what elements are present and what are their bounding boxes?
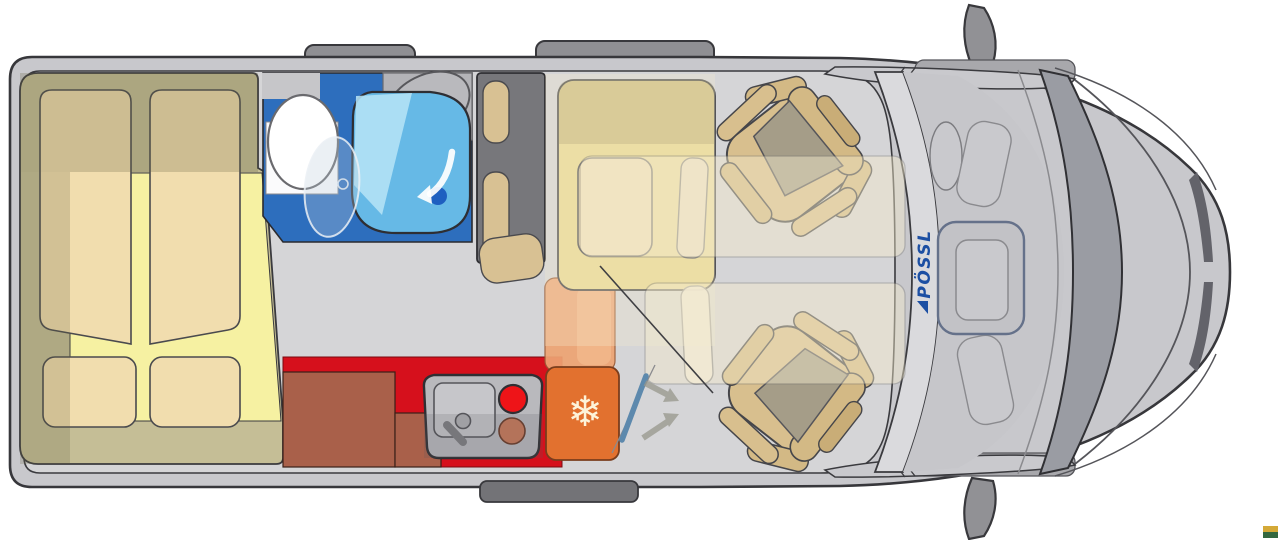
dash-speaker xyxy=(930,122,962,190)
floorplan-canvas: ❄ xyxy=(0,0,1280,540)
kitchen xyxy=(283,357,562,467)
instrument-cluster xyxy=(956,240,1008,320)
brand-logo-text: PÖSSL xyxy=(913,229,935,298)
bed-shade-overlay xyxy=(20,172,70,464)
wardrobe-end-cushion xyxy=(477,232,546,285)
sink-unit-shade xyxy=(424,414,543,458)
wardrobe-cushion xyxy=(483,81,509,143)
bed-overlay xyxy=(645,283,905,384)
bed-shade-overlay xyxy=(20,73,258,172)
burner-icon xyxy=(499,385,527,413)
bathroom xyxy=(262,58,481,242)
wardrobe xyxy=(477,73,546,285)
rear-bed xyxy=(20,73,283,464)
mirror-bottom-icon xyxy=(964,478,995,539)
mirror-top-icon xyxy=(964,5,995,66)
corner-color-mark xyxy=(1263,526,1278,538)
bed-cushion xyxy=(150,357,240,427)
floorplan-page: ❄ xyxy=(0,0,1280,540)
snowflake-icon: ❄ xyxy=(567,387,602,436)
bed-overlay xyxy=(580,156,905,257)
entry-step xyxy=(480,481,638,502)
kitchen-cabinet xyxy=(283,372,395,467)
